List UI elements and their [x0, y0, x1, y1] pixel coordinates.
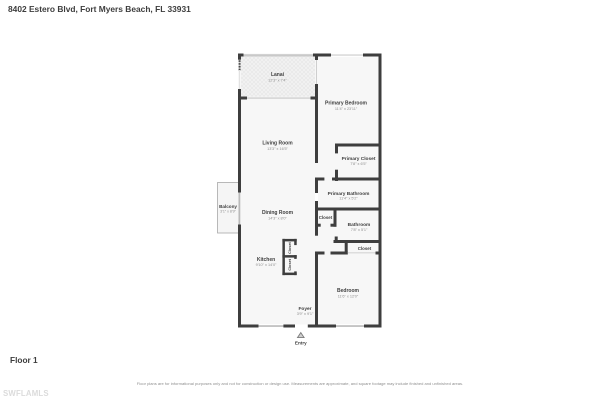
- svg-text:Closet: Closet: [288, 258, 292, 270]
- svg-text:Kitchen: Kitchen: [257, 257, 275, 263]
- svg-text:3'9" x 9'1": 3'9" x 9'1": [297, 312, 314, 316]
- svg-text:Closet: Closet: [358, 246, 372, 251]
- svg-text:7'8" x 6'5": 7'8" x 6'5": [350, 162, 367, 166]
- svg-text:Dining Room: Dining Room: [262, 210, 294, 216]
- svg-text:Lanai: Lanai: [271, 72, 285, 78]
- svg-text:Closet: Closet: [288, 241, 292, 253]
- svg-text:Primary Bedroom: Primary Bedroom: [325, 101, 368, 107]
- svg-text:11'4" x 23'11": 11'4" x 23'11": [335, 107, 358, 111]
- svg-text:Bedroom: Bedroom: [337, 288, 360, 294]
- svg-text:11'4" x 5'2": 11'4" x 5'2": [339, 197, 358, 201]
- svg-text:Closet: Closet: [319, 215, 333, 220]
- svg-text:14'3" x 8'0": 14'3" x 8'0": [268, 216, 287, 220]
- svg-text:7'8" x 5'1": 7'8" x 5'1": [351, 228, 368, 232]
- svg-text:9'10" x 14'0": 9'10" x 14'0": [256, 263, 277, 267]
- svg-text:13'3" x 16'5": 13'3" x 16'5": [267, 147, 288, 151]
- svg-text:11'6" x 12'0": 11'6" x 12'0": [338, 294, 359, 298]
- svg-text:Entry: Entry: [295, 341, 307, 346]
- svg-text:Balcony: Balcony: [219, 204, 237, 209]
- svg-text:3'1" x 8'9": 3'1" x 8'9": [220, 210, 236, 214]
- svg-text:Living Room: Living Room: [262, 141, 293, 147]
- svg-text:12'3" x 7'4": 12'3" x 7'4": [268, 78, 287, 82]
